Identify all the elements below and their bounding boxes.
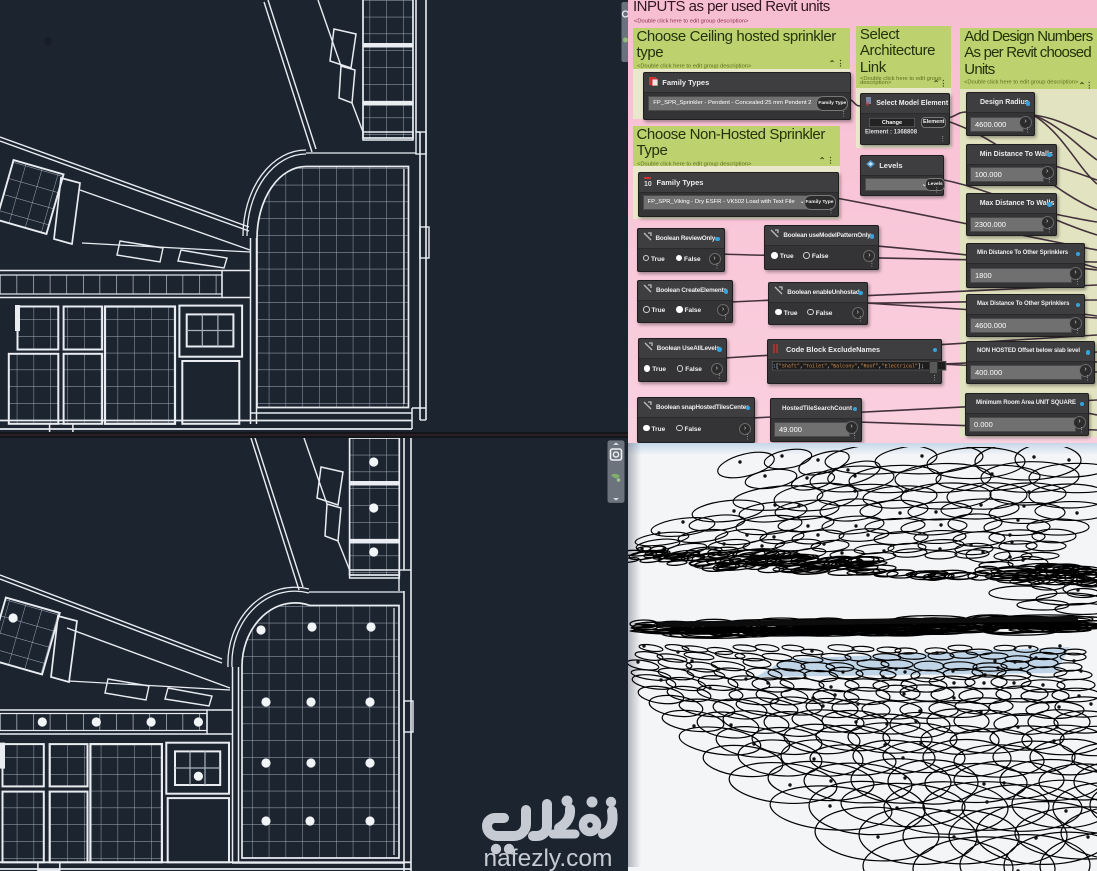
svg-text:nafezly.com: nafezly.com (484, 845, 613, 871)
svg-text:10: 10 (644, 181, 652, 186)
